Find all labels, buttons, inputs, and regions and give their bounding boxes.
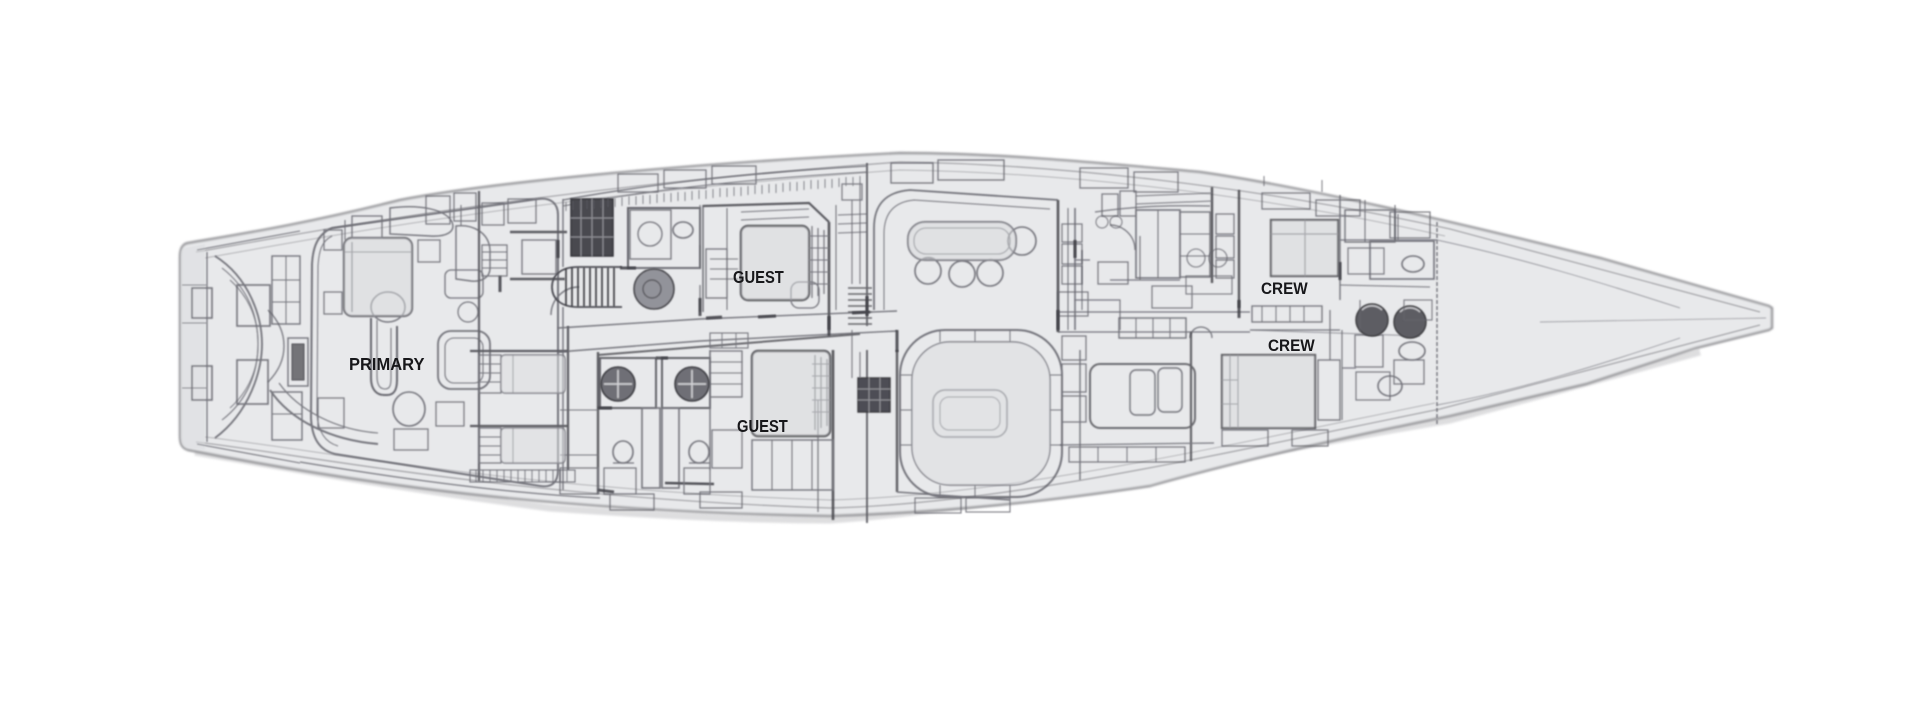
svg-text:GUEST: GUEST bbox=[737, 417, 788, 437]
svg-text:PRIMARY: PRIMARY bbox=[349, 355, 424, 374]
svg-text:CREW: CREW bbox=[1261, 279, 1308, 298]
svg-text:CREW: CREW bbox=[1268, 336, 1315, 355]
svg-text:GUEST: GUEST bbox=[733, 268, 784, 288]
